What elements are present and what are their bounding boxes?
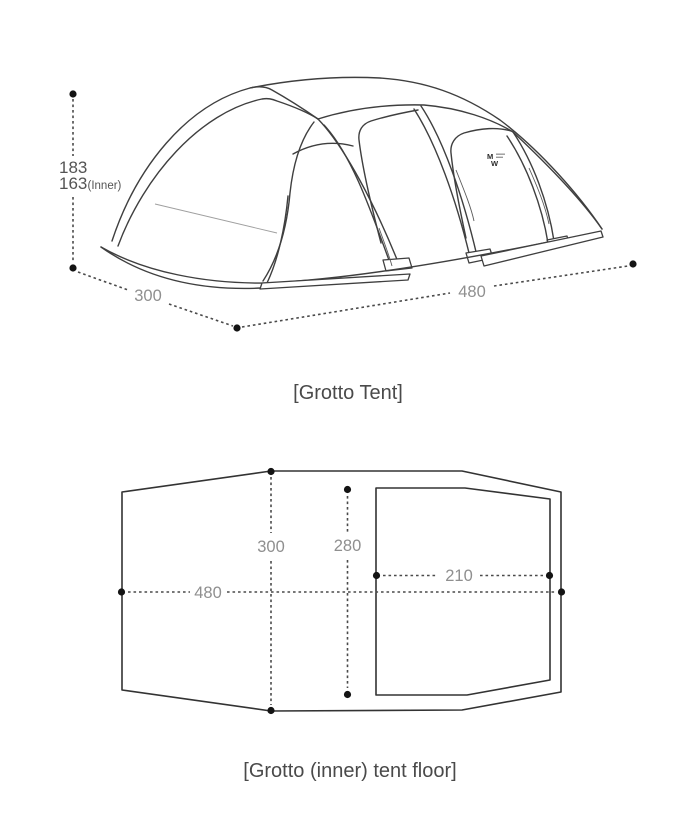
height-inner-suffix-label: (Inner)	[88, 180, 122, 192]
floor-caption: [Grotto (inner) tent floor]	[243, 760, 456, 782]
tent-right-pole-back	[507, 136, 548, 243]
tent-front-arch	[118, 99, 318, 246]
tent-ground-strip-right	[481, 231, 603, 266]
floor-inner-width-dot-top	[344, 486, 351, 493]
tent-hem-line	[101, 242, 548, 283]
floor-inner-width-dot-bottom	[344, 691, 351, 698]
floor-outer-length-label: 480	[194, 584, 222, 602]
tent-vestibule-edge	[263, 122, 314, 281]
tent-ridge-line	[250, 77, 602, 229]
height-dim-dot-top	[69, 90, 76, 97]
tent-ground-strip-middle	[260, 274, 410, 289]
length-label: 480	[458, 283, 486, 301]
tent-second-pole-front	[421, 106, 477, 256]
depth-dim-line-1	[78, 272, 128, 290]
tent-door2-frame	[451, 129, 511, 238]
depth-label: 300	[134, 287, 162, 305]
tent-middle-pole-front	[318, 119, 398, 262]
floor-plan: 300 280 480 210	[118, 468, 565, 714]
tent-caption: [Grotto Tent]	[293, 382, 403, 404]
height-dim-dot-bottom	[69, 264, 76, 271]
brand-logo-text-line-1	[496, 154, 505, 155]
floor-inner-outline	[376, 488, 550, 695]
tent-dimensions: 183 163 (Inner) 300 480	[59, 90, 637, 331]
floor-outer-outline	[122, 471, 561, 711]
floor-inner-length-dot-left	[373, 572, 380, 579]
floor-length-dot-left	[118, 588, 125, 595]
floor-inner-width-label: 280	[334, 537, 362, 555]
brand-logo-text-line-2	[496, 157, 503, 158]
length-dim-line-1	[242, 293, 450, 327]
floor-inner-length-dot-right	[546, 572, 553, 579]
tent-spec-sheet: M W 183 163 (Inner) 300 480	[0, 0, 700, 832]
length-dim-line-2	[494, 266, 628, 286]
floor-length-dot-right	[558, 588, 565, 595]
height-inner-label: 163	[59, 174, 87, 193]
floor-inner-length-label: 210	[445, 567, 473, 585]
length-dim-dot	[629, 260, 636, 267]
brand-logo-w: W	[491, 159, 499, 168]
floor-width-dot-top	[267, 468, 274, 475]
tent-door1-frame	[359, 110, 418, 243]
tent-zipper-door2	[529, 168, 549, 224]
diagram-canvas: M W 183 163 (Inner) 300 480	[0, 0, 700, 832]
brand-logo: M W	[487, 152, 505, 168]
depth-dim-line-2	[169, 304, 233, 326]
depth-dim-dot	[233, 324, 240, 331]
floor-width-dot-bottom	[267, 707, 274, 714]
floor-outer-width-label: 300	[257, 538, 285, 556]
tent-seam-line	[155, 204, 277, 233]
tent-drawing: M W	[101, 77, 603, 289]
